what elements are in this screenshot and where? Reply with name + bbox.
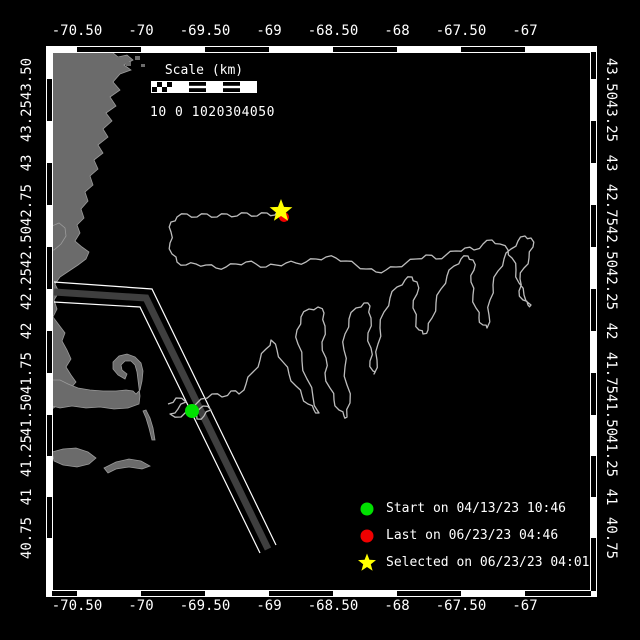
lat-label-left-7: 41.75 (19, 352, 35, 394)
islet-0 (116, 57, 122, 61)
legend-item-1: Last on 06/23/23 04:46 (356, 522, 590, 549)
lon-label-bottom-1: -70 (128, 598, 153, 614)
star-icon (357, 553, 377, 573)
lat-label-right-8: 41.50 (603, 394, 619, 436)
scale-bar (152, 82, 258, 93)
circle-icon (357, 526, 377, 546)
lat-label-right-10: 41 (603, 489, 619, 506)
lat-label-right-7: 41.75 (603, 352, 619, 394)
lon-label-top-3: -69 (256, 23, 281, 39)
lat-label-left-5: 42.25 (19, 268, 35, 310)
lat-label-left-6: 42 (19, 323, 35, 340)
lat-label-left-10: 41 (19, 489, 35, 506)
island-nantucket (104, 459, 150, 473)
scale-bar-tick-labels: 10 0 1020304050 (150, 105, 275, 120)
lat-label-left-0: 43.50 (19, 58, 35, 100)
lon-label-bottom-2: -69.50 (180, 598, 231, 614)
lat-label-right-11: 40.75 (603, 517, 619, 559)
lon-label-top-4: -68.50 (308, 23, 359, 39)
legend-dot-icon (356, 499, 378, 519)
shipping-lane-band (54, 292, 268, 549)
legend: Start on 04/13/23 10:46Last on 06/23/23 … (356, 495, 590, 576)
legend-label-1: Last on 06/23/23 04:46 (386, 528, 558, 543)
map-figure: -70.50-70-69.50-69-68.50-68-67.50-67-70.… (0, 0, 640, 640)
legend-label-0: Start on 04/13/23 10:46 (386, 501, 566, 516)
lat-label-left-2: 43 (19, 155, 35, 172)
lat-label-right-0: 43.50 (603, 58, 619, 100)
scale-bar-title: Scale (km) (165, 63, 243, 78)
lat-label-right-1: 43.25 (603, 100, 619, 142)
shipping-lane-edge-upper (54, 282, 276, 545)
lon-label-top-5: -68 (384, 23, 409, 39)
lon-label-top-6: -67.50 (436, 23, 487, 39)
lat-label-left-3: 42.75 (19, 184, 35, 226)
islet-3 (141, 64, 145, 67)
lat-label-right-2: 43 (603, 155, 619, 172)
lon-label-bottom-3: -69 (256, 598, 281, 614)
lat-label-left-11: 40.75 (19, 517, 35, 559)
legend-item-0: Start on 04/13/23 10:46 (356, 495, 590, 522)
legend-item-2: Selected on 06/23/23 04:01 (356, 549, 590, 576)
shipping-lane-edge-lower (54, 302, 260, 553)
lat-label-right-5: 42.25 (603, 268, 619, 310)
island-marthas-vineyard (52, 448, 96, 467)
lat-label-left-1: 43.25 (19, 100, 35, 142)
lat-label-right-6: 42 (603, 323, 619, 340)
lon-label-top-1: -70 (128, 23, 153, 39)
lon-label-bottom-7: -67 (512, 598, 537, 614)
lon-label-top-2: -69.50 (180, 23, 231, 39)
lat-label-right-4: 42.50 (603, 226, 619, 268)
lon-label-top-7: -67 (512, 23, 537, 39)
legend-label-2: Selected on 06/23/23 04:01 (386, 555, 590, 570)
islet-1 (126, 62, 131, 66)
circle-icon (357, 499, 377, 519)
map-content (52, 52, 534, 553)
lon-label-bottom-5: -68 (384, 598, 409, 614)
lat-label-left-4: 42.50 (19, 226, 35, 268)
islet-2 (135, 56, 140, 60)
lon-label-bottom-6: -67.50 (436, 598, 487, 614)
island-monomoy (143, 410, 155, 440)
lat-label-right-3: 42.75 (603, 184, 619, 226)
track-line (168, 212, 534, 419)
lat-label-left-9: 41.25 (19, 435, 35, 477)
lat-label-left-8: 41.50 (19, 394, 35, 436)
legend-dot-icon (356, 526, 378, 546)
lon-label-bottom-4: -68.50 (308, 598, 359, 614)
lon-label-top-0: -70.50 (52, 23, 103, 39)
lat-label-right-9: 41.25 (603, 435, 619, 477)
lon-label-bottom-0: -70.50 (52, 598, 103, 614)
islet-4 (108, 66, 112, 69)
legend-star-icon (356, 553, 378, 573)
start-marker (185, 404, 199, 418)
